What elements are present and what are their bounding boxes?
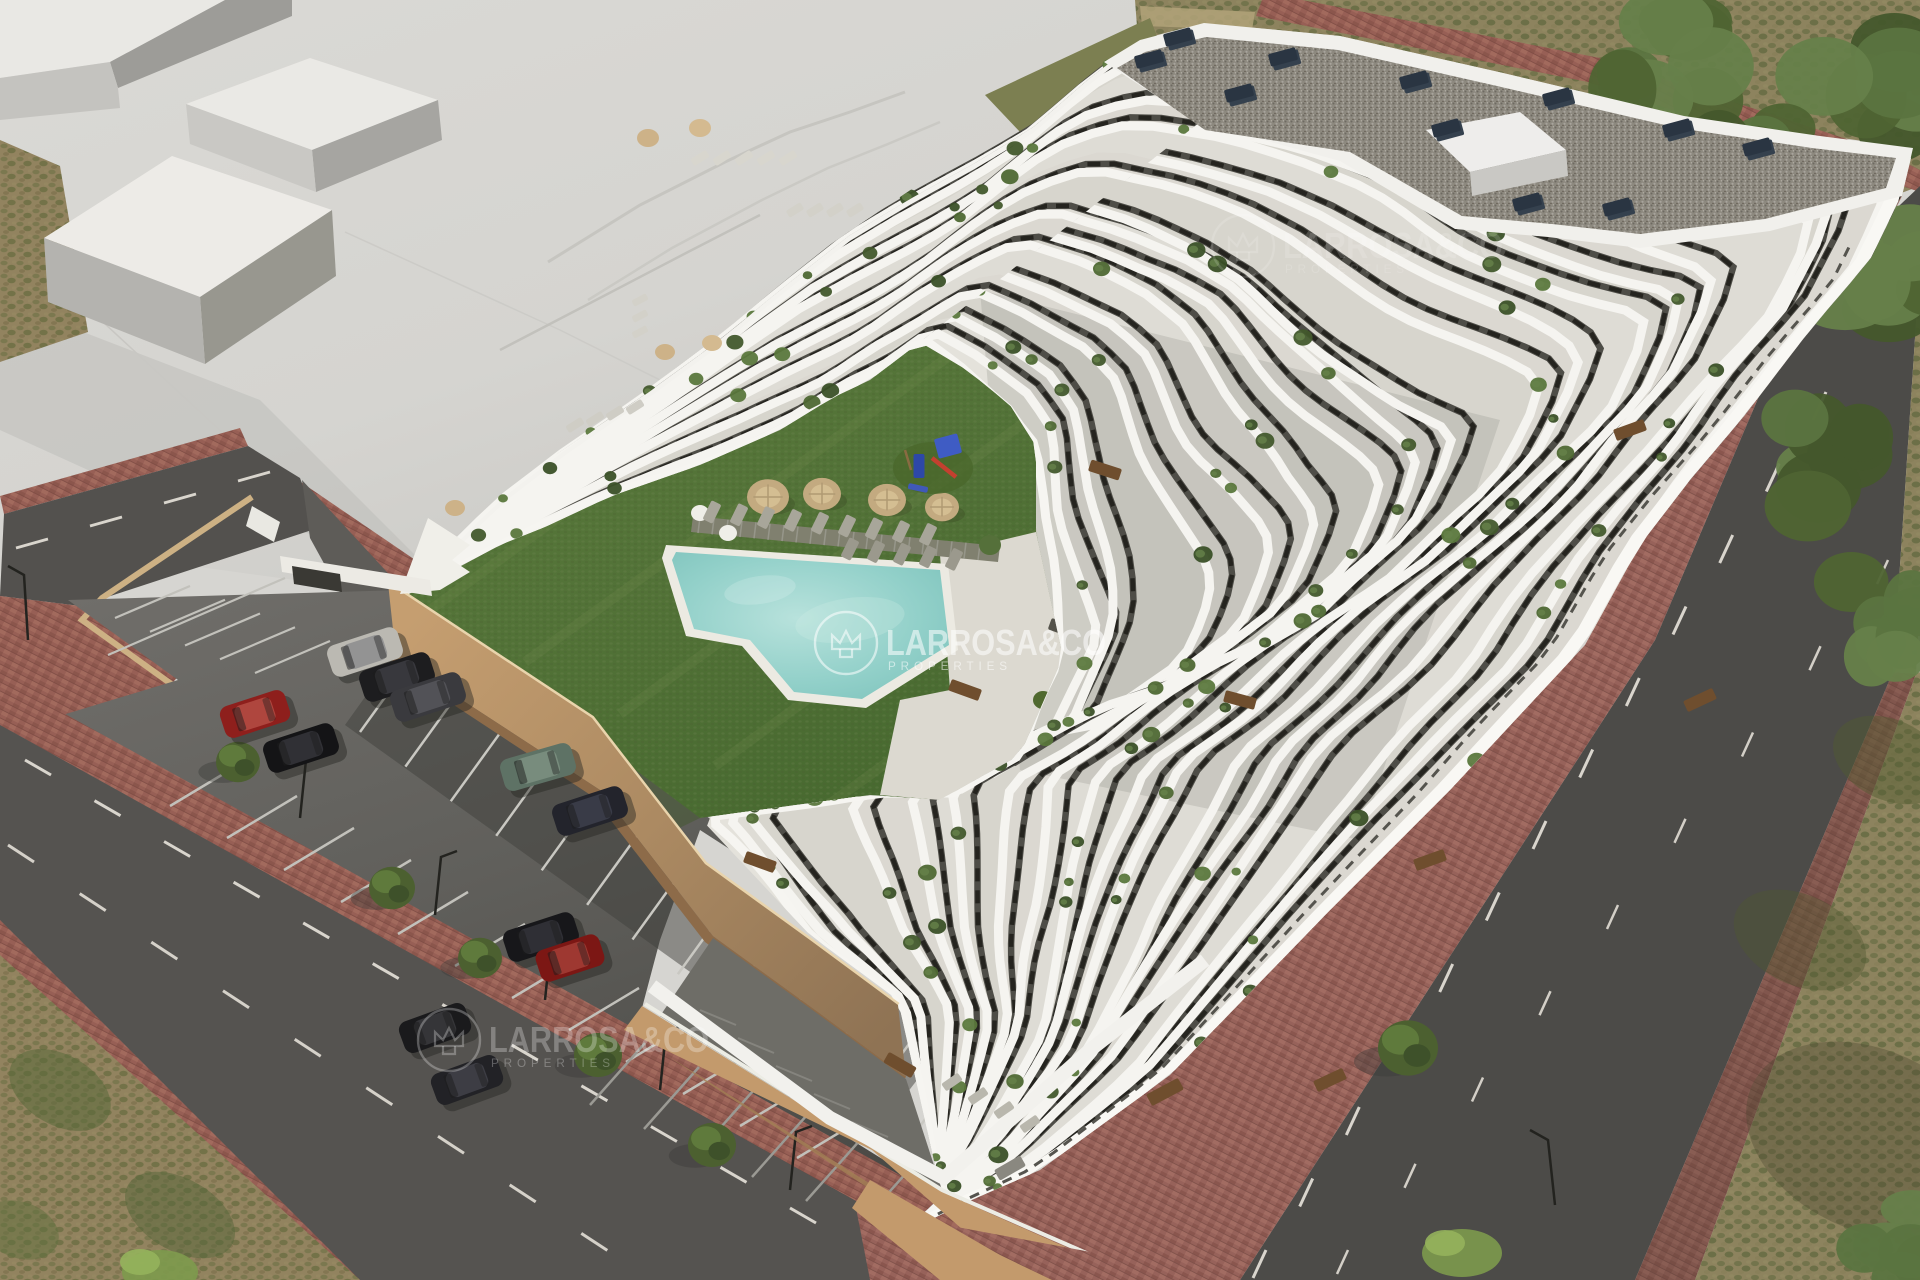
svg-text:PROPERTIES: PROPERTIES <box>491 1056 615 1070</box>
svg-text:LARROSA&CO: LARROSA&CO <box>489 1019 709 1060</box>
svg-text:LARROSA&CO: LARROSA&CO <box>886 622 1106 663</box>
svg-text:PROPERTIES: PROPERTIES <box>888 659 1012 673</box>
svg-text:LARROSA&CO: LARROSA&CO <box>1283 225 1503 266</box>
svg-text:PROPERTIES: PROPERTIES <box>1285 262 1409 276</box>
